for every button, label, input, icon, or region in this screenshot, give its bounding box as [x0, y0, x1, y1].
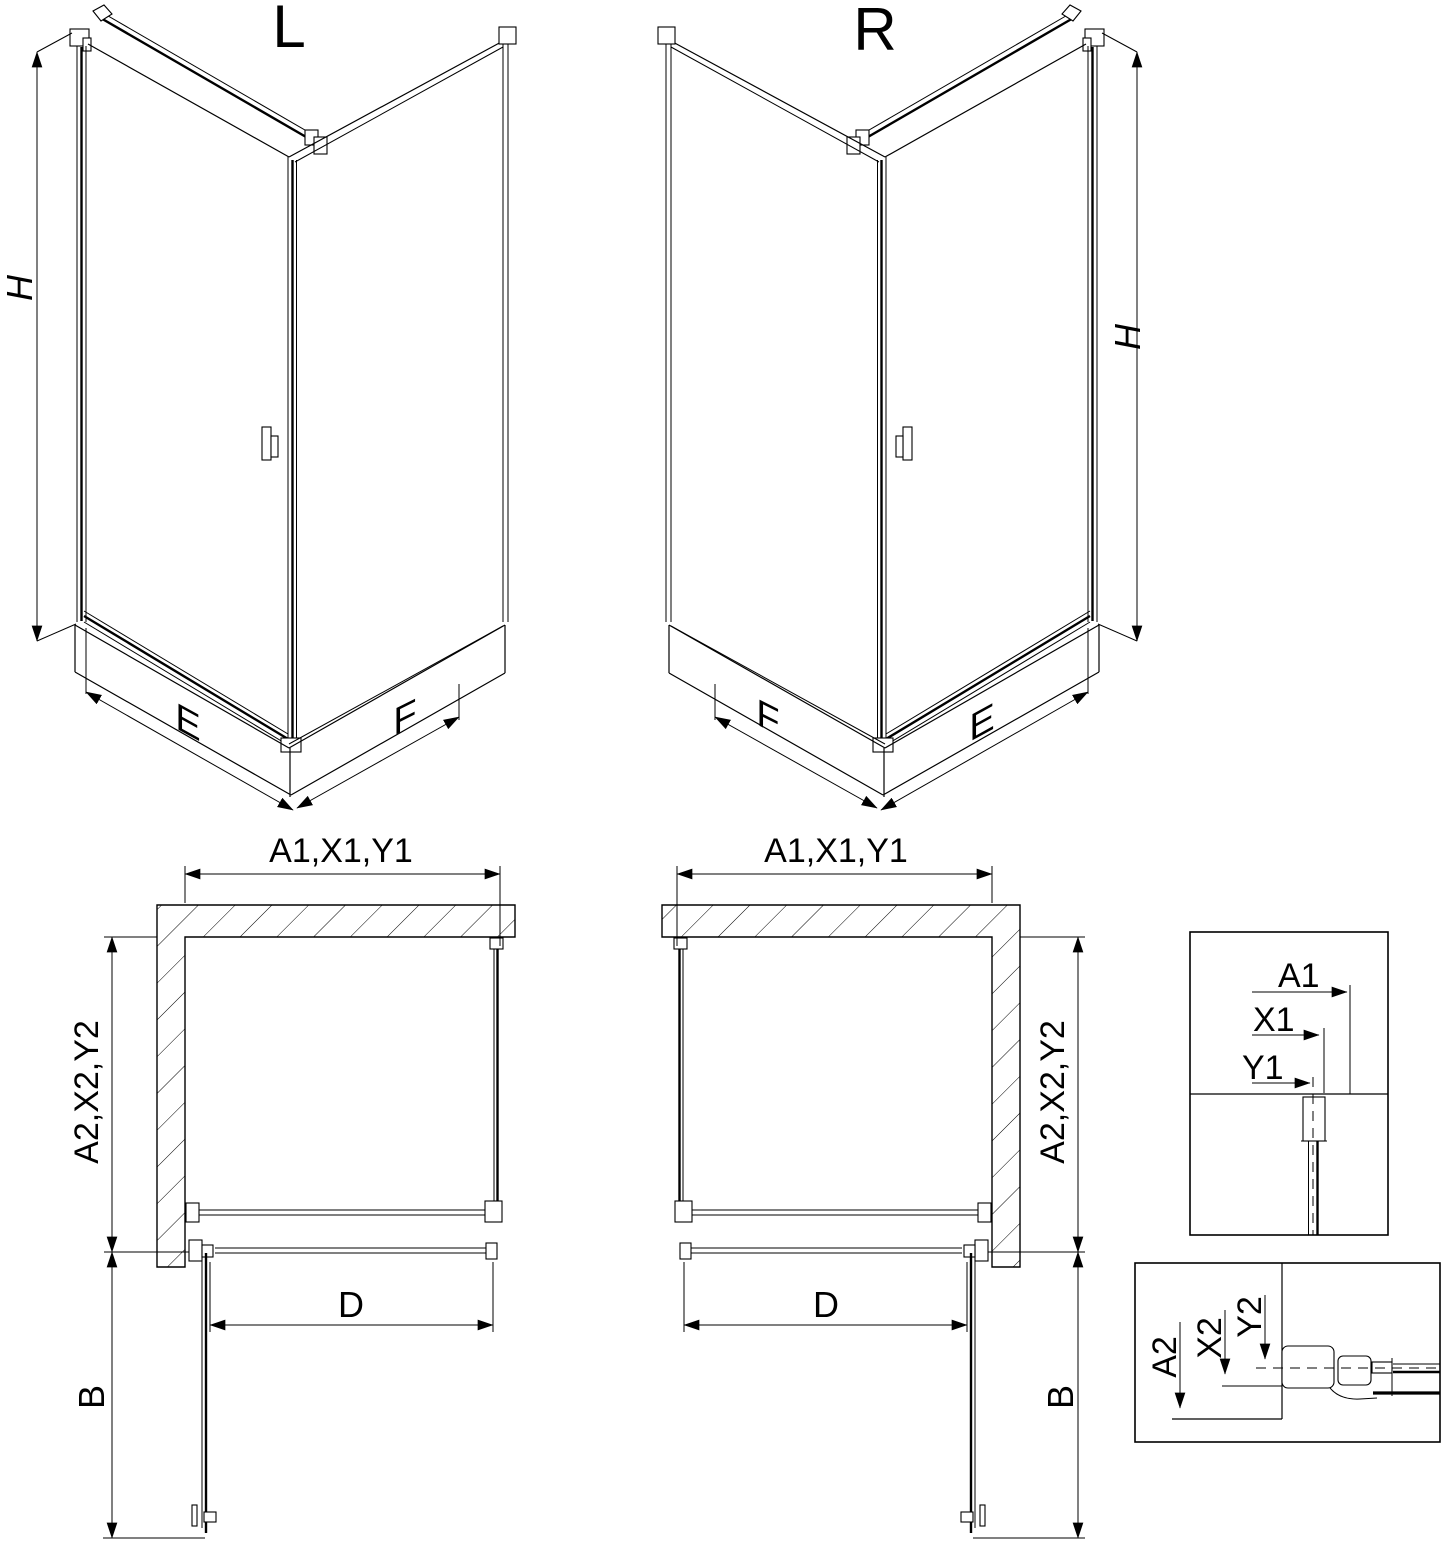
dim-d: D [684, 1262, 967, 1332]
door-closed-plan [680, 1240, 988, 1261]
wall [662, 905, 1020, 1267]
iso-left-label: L [272, 0, 305, 60]
door-open-plan [961, 1253, 985, 1533]
detail-y2-label: Y2 [1231, 1296, 1269, 1338]
iso-right-height-label: H [1107, 323, 1148, 350]
side-panel-plan [674, 938, 687, 1205]
plan-view-right: A1,X1,Y1 A2,X2,Y2 B D [662, 832, 1085, 1538]
plan-right-door-width-label: D [813, 1284, 839, 1325]
plan-right-depth-label: A2,X2,Y2 [1034, 1020, 1072, 1164]
iso-right-f-label: F [756, 690, 779, 744]
dim-height: H [0, 33, 76, 641]
dim-d: D [210, 1262, 493, 1332]
wall [157, 905, 515, 1267]
plan-left-door-width-label: D [338, 1284, 364, 1325]
iso-view-right: H E F R [658, 0, 1148, 810]
support-bar-plan [675, 1201, 991, 1222]
door-handle-icon [896, 427, 912, 460]
door-panel [84, 44, 289, 745]
side-panel [658, 27, 885, 744]
corner-post [873, 157, 893, 752]
corner-post [281, 157, 301, 752]
iso-left-height-label: H [0, 274, 40, 301]
iso-left-e-label: E [175, 694, 200, 751]
door-closed-plan [189, 1240, 497, 1261]
iso-right-e-label: E [969, 694, 994, 751]
plan-left-width-label: A1,X1,Y1 [269, 832, 413, 870]
hinge-profile [70, 29, 91, 622]
dim-e: E [86, 628, 293, 810]
technical-drawing: H E F L [0, 0, 1446, 1546]
plan-view-left: A1,X1,Y1 A2,X2,Y2 B D [68, 832, 515, 1538]
detail-box-top: A1 X1 Y1 [1190, 932, 1388, 1235]
side-panel [289, 27, 516, 744]
side-panel-plan [490, 938, 503, 1205]
detail-x2-label: X2 [1191, 1317, 1229, 1359]
plan-left-swing-label: B [71, 1385, 112, 1409]
dim-height: H [1098, 33, 1148, 641]
shower-enclosure-diagram: H E F L [0, 0, 1446, 1546]
detail-a2-label: A2 [1146, 1336, 1184, 1378]
detail-y1-label: Y1 [1242, 1049, 1284, 1087]
dim-e: E [881, 628, 1088, 810]
dim-b: B [973, 1252, 1085, 1538]
detail-x1-label: X1 [1253, 1001, 1295, 1039]
detail-box-bottom: A2 X2 Y2 [1135, 1263, 1440, 1442]
door-handle-icon [262, 427, 278, 460]
support-bar-plan [186, 1201, 502, 1222]
hinge-profile [1083, 29, 1104, 622]
iso-right-label: R [853, 0, 896, 63]
dim-b: B [71, 1252, 205, 1538]
door-open-plan [192, 1253, 216, 1533]
plan-right-width-label: A1,X1,Y1 [764, 832, 908, 870]
plan-left-depth-label: A2,X2,Y2 [68, 1020, 106, 1164]
door-panel [885, 44, 1090, 745]
detail-a1-label: A1 [1278, 957, 1320, 995]
iso-view-left: H E F L [0, 0, 516, 810]
iso-left-f-label: F [393, 690, 416, 744]
plan-right-swing-label: B [1040, 1385, 1081, 1409]
